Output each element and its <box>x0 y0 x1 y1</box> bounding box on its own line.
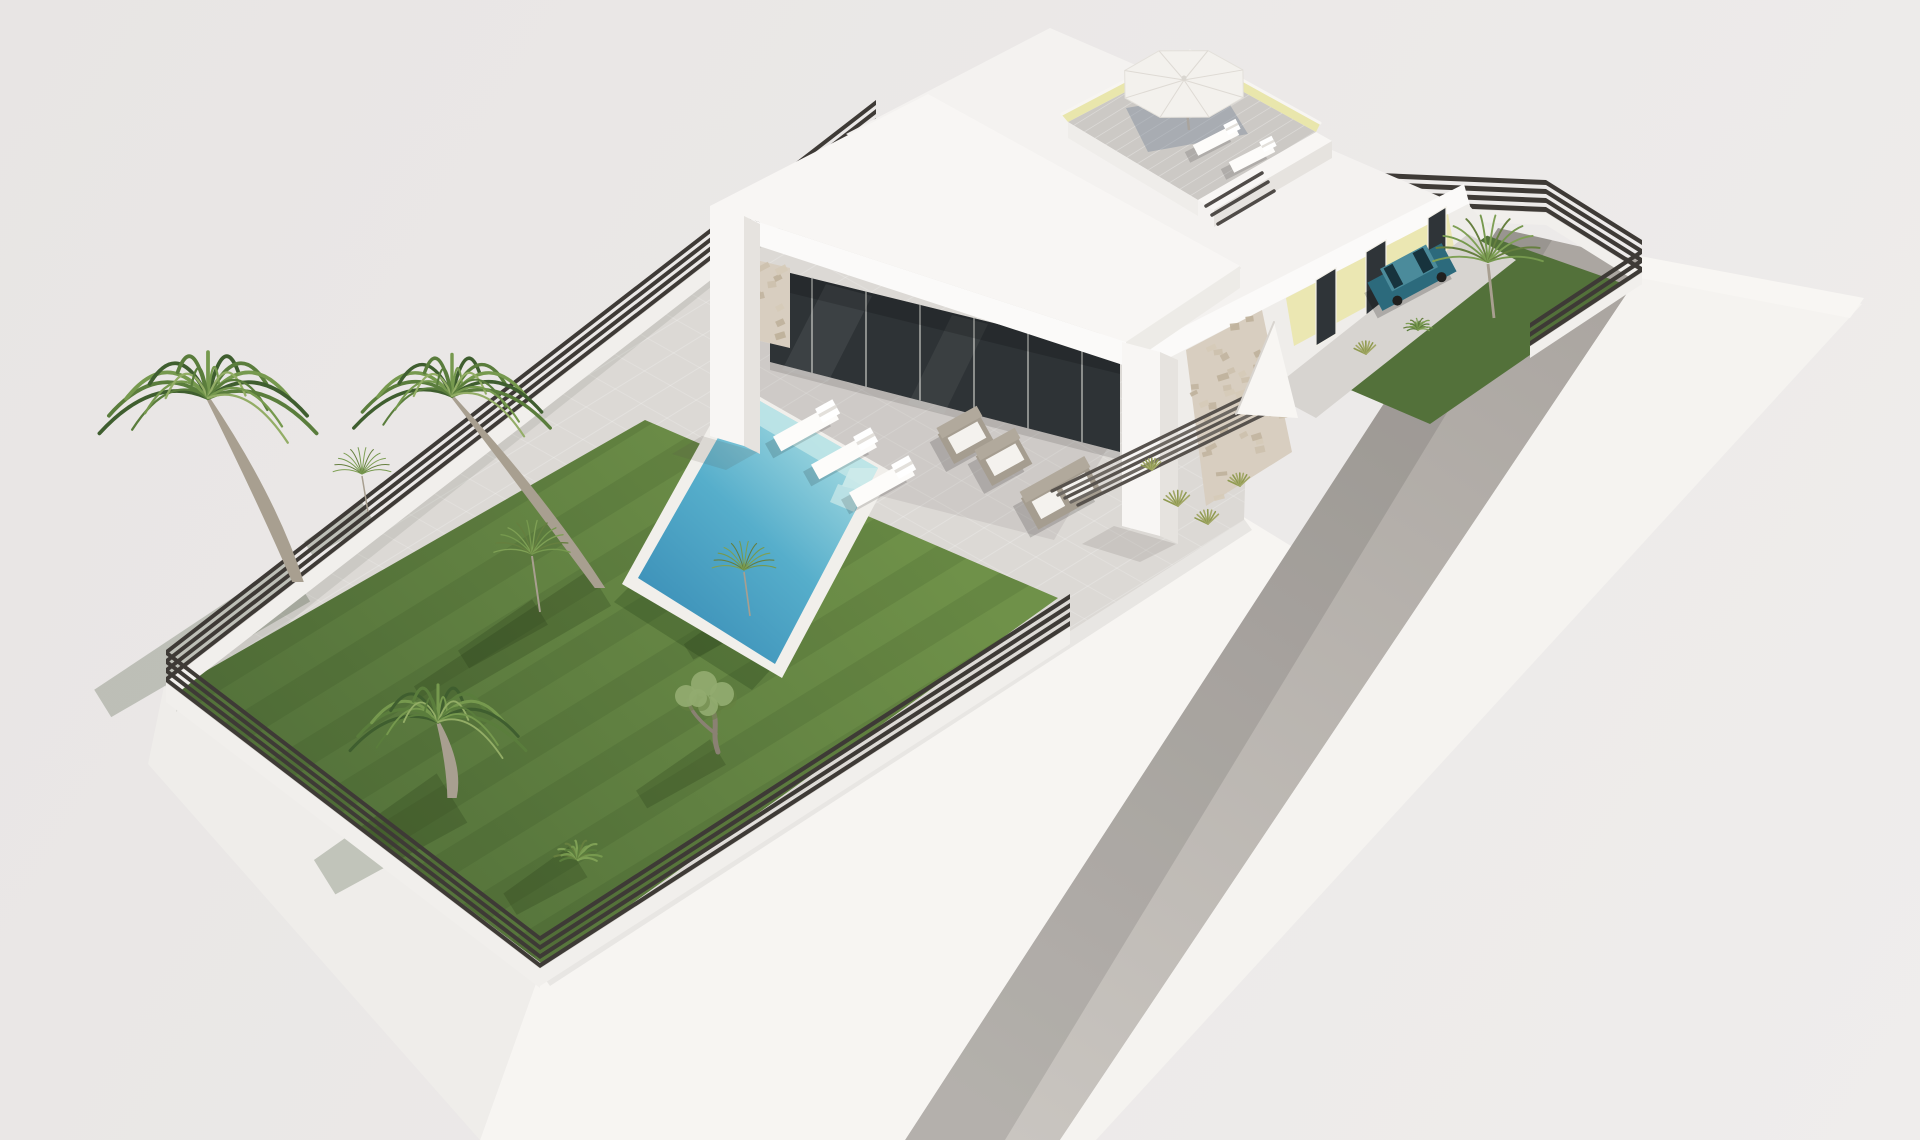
porch-pillar-right <box>1122 342 1160 536</box>
villa-aerial-render <box>0 0 1920 1140</box>
porch-pillar-left-side <box>744 216 760 454</box>
render-viewport <box>0 0 1920 1140</box>
window <box>1316 268 1336 346</box>
porch-pillar-left <box>710 206 744 446</box>
